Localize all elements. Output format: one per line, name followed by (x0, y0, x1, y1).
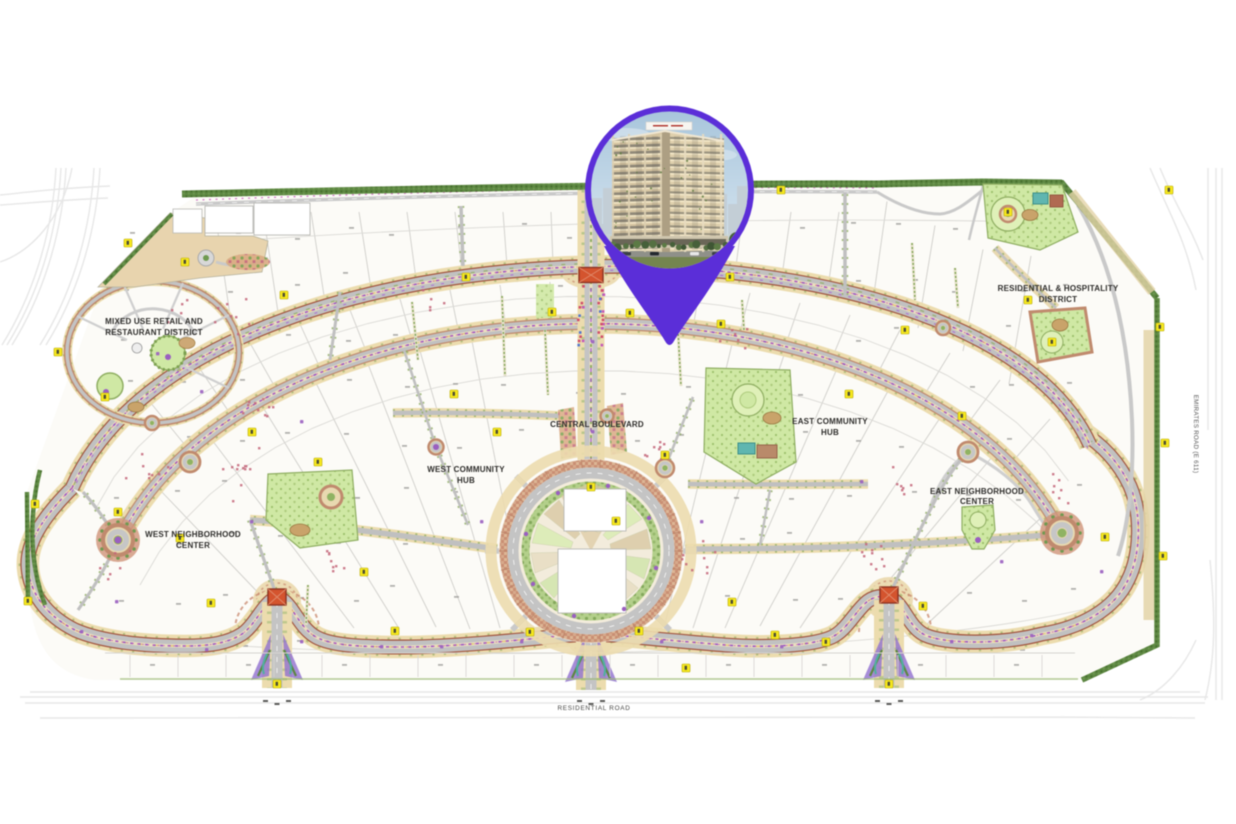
svg-text:RESTAURANT DISTRICT: RESTAURANT DISTRICT (105, 328, 202, 337)
svg-text:CENTER: CENTER (176, 541, 210, 550)
svg-text:RESIDENTIAL ROAD: RESIDENTIAL ROAD (557, 705, 630, 712)
svg-text:HUB: HUB (457, 476, 475, 485)
svg-text:RESIDENTIAL & HOSPITALITY: RESIDENTIAL & HOSPITALITY (998, 284, 1119, 293)
svg-text:EMIRATES ROAD (E 611): EMIRATES ROAD (E 611) (1192, 395, 1199, 474)
svg-text:EAST NEIGHBORHOOD: EAST NEIGHBORHOOD (930, 487, 1024, 496)
svg-text:WEST COMMUNITY: WEST COMMUNITY (427, 465, 505, 474)
svg-text:EAST COMMUNITY: EAST COMMUNITY (792, 417, 868, 426)
svg-text:DISTRICT: DISTRICT (1039, 295, 1078, 304)
svg-text:CENTER: CENTER (960, 497, 994, 506)
svg-text:MIXED USE RETAIL AND: MIXED USE RETAIL AND (105, 317, 203, 326)
svg-text:WEST NEIGHBORHOOD: WEST NEIGHBORHOOD (145, 530, 241, 539)
svg-text:HUB: HUB (821, 428, 839, 437)
svg-text:CENTRAL BOULEVARD: CENTRAL BOULEVARD (550, 420, 644, 429)
